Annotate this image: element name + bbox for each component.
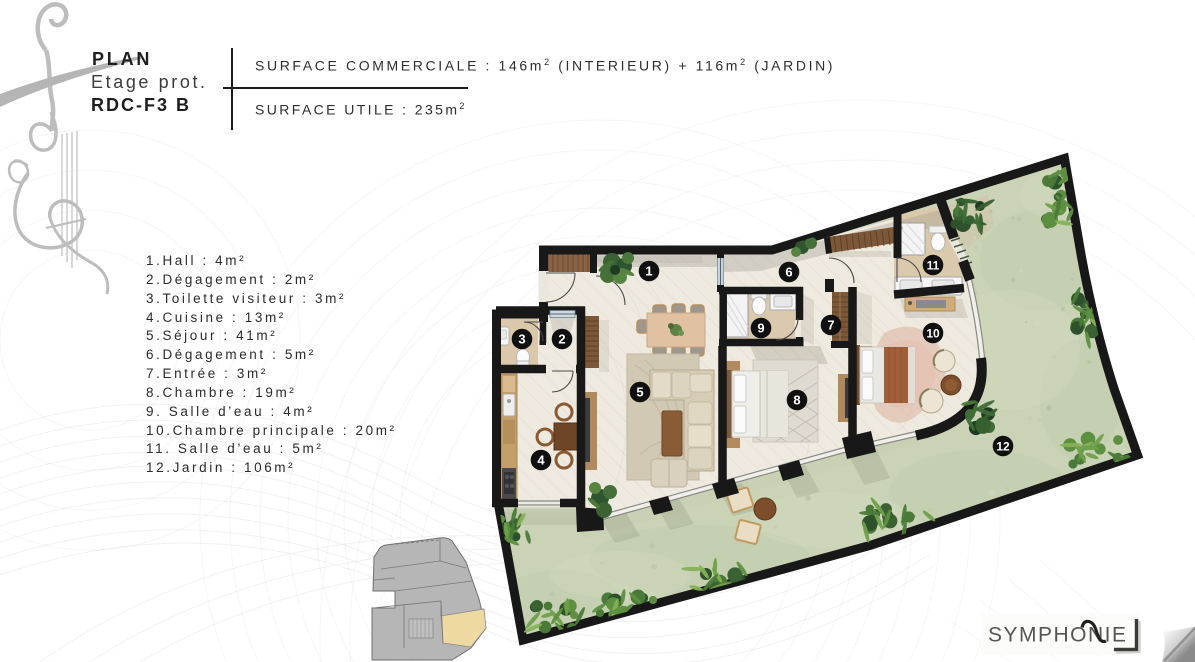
svg-text:12: 12 [996, 440, 1010, 454]
svg-text:1: 1 [645, 264, 652, 279]
svg-text:SYMPHONIE: SYMPHONIE [988, 624, 1128, 647]
svg-text:7: 7 [827, 318, 834, 333]
svg-text:11: 11 [927, 259, 940, 273]
svg-text:5: 5 [636, 385, 643, 400]
svg-text:3: 3 [518, 332, 525, 347]
svg-text:6: 6 [785, 265, 792, 280]
svg-text:10: 10 [926, 327, 940, 341]
svg-text:8: 8 [793, 393, 800, 408]
svg-text:9: 9 [757, 321, 764, 336]
svg-text:4: 4 [537, 453, 545, 468]
svg-text:2: 2 [558, 332, 565, 347]
